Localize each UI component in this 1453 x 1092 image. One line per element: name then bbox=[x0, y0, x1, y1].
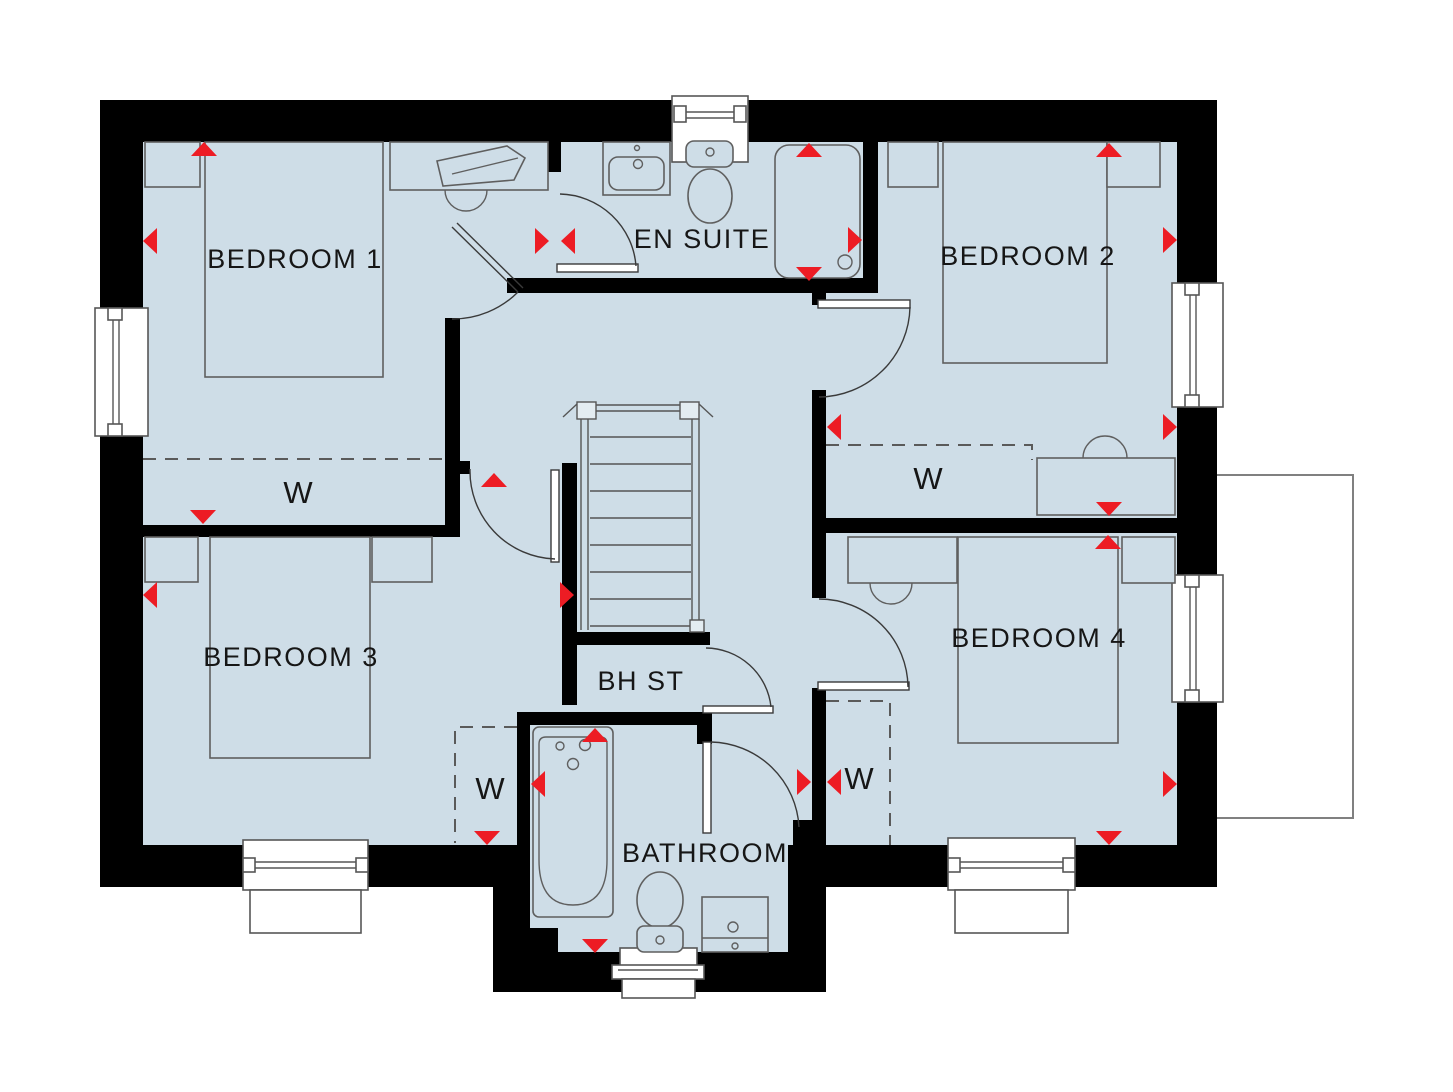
label-bedroom1: BEDROOM 1 bbox=[207, 244, 383, 274]
bedside-table-bedroom2 bbox=[1107, 142, 1160, 187]
toilet-cistern-ensuite bbox=[686, 141, 733, 167]
toilet-bowl-ensuite bbox=[688, 169, 732, 223]
bathroom-step-wall bbox=[530, 928, 558, 952]
wall-bedroom1-east bbox=[445, 318, 460, 537]
label-bulkhead-store: BH ST bbox=[597, 666, 684, 696]
window-bedroom3-south bbox=[243, 840, 368, 933]
floor-plan: BEDROOM 1 EN SUITE BEDROOM 2 BEDROOM 3 B… bbox=[0, 0, 1453, 1092]
window-bedroom1-west bbox=[95, 308, 148, 436]
wall-bedroom3-door-stub bbox=[445, 461, 470, 474]
toilet-cistern-bathroom bbox=[637, 926, 683, 952]
shower-tray bbox=[775, 145, 860, 278]
label-bedroom3: BEDROOM 3 bbox=[203, 642, 379, 672]
bedside-table-bedroom4 bbox=[1122, 537, 1175, 583]
label-ensuite: EN SUITE bbox=[634, 224, 771, 254]
floor-plan-drawing: BEDROOM 1 EN SUITE BEDROOM 2 BEDROOM 3 B… bbox=[0, 0, 1453, 1092]
label-bedroom2: BEDROOM 2 bbox=[940, 241, 1116, 271]
wall-stairs-west bbox=[562, 463, 577, 705]
sink-basin-ensuite bbox=[609, 157, 664, 190]
wall-stairs-south bbox=[562, 632, 710, 645]
stair-newel-post bbox=[680, 402, 699, 419]
wall-bedroom1-south bbox=[143, 525, 460, 537]
label-wardrobe-bedroom1: W bbox=[283, 475, 313, 510]
wall-bathroom-door-stub-north bbox=[697, 712, 712, 744]
label-wardrobe-bedroom4: W bbox=[844, 761, 874, 796]
label-wardrobe-bedroom3: W bbox=[475, 771, 505, 806]
wall-bedroom2-bedroom4 bbox=[812, 518, 1177, 533]
external-structure-outline bbox=[1216, 475, 1353, 818]
window-bathroom-south bbox=[612, 948, 704, 998]
window-bedroom4-south bbox=[948, 838, 1075, 933]
window-bedroom2-east bbox=[1172, 283, 1223, 407]
stair-newel-post bbox=[690, 620, 704, 632]
toilet-bowl-bathroom bbox=[637, 872, 683, 928]
sink-vanity-bathroom bbox=[702, 897, 768, 952]
stair-newel-post bbox=[577, 402, 596, 419]
label-bedroom4: BEDROOM 4 bbox=[951, 623, 1127, 653]
label-wardrobe-bedroom2: W bbox=[913, 461, 943, 496]
label-bathroom: BATHROOM bbox=[622, 838, 788, 868]
wall-bedroom4-west-lower bbox=[812, 688, 826, 845]
bedside-table-bedroom3 bbox=[145, 537, 198, 582]
bedside-table-bedroom3 bbox=[372, 537, 432, 582]
bedside-table-bedroom1 bbox=[145, 142, 200, 187]
wall-bathroom-north bbox=[517, 712, 710, 725]
wall-bedroom4-west-upper bbox=[812, 533, 826, 598]
wall-ensuite-west-stub bbox=[548, 142, 561, 172]
desk-bedroom4 bbox=[848, 537, 957, 583]
wall-bathroom-door-stub-south bbox=[793, 820, 812, 845]
window-bedroom4-east bbox=[1172, 575, 1223, 702]
wall-bedroom2-west bbox=[812, 390, 826, 533]
bedside-table-bedroom2 bbox=[888, 142, 938, 187]
wall-bedroom3-bathroom bbox=[517, 712, 530, 845]
wall-ensuite-east bbox=[863, 142, 878, 293]
